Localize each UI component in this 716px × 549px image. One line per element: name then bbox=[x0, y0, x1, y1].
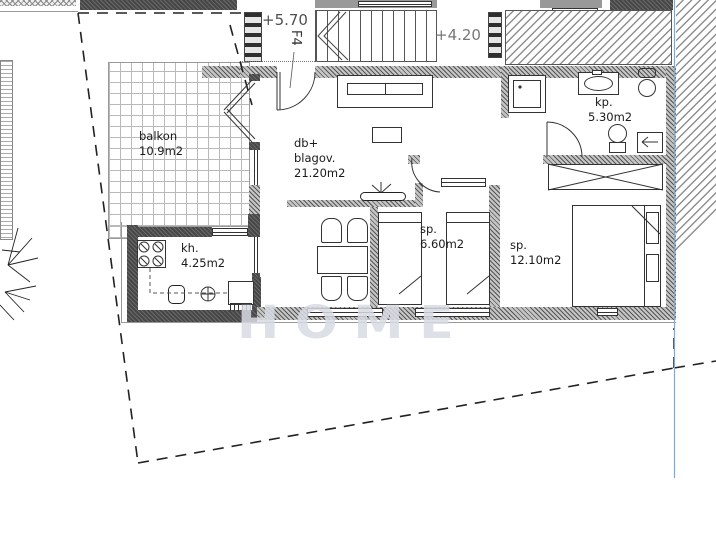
elevation-upper-label: +5.70 bbox=[262, 11, 308, 29]
sofa-divider bbox=[385, 83, 386, 95]
bed-small-1-headline bbox=[379, 222, 421, 223]
wc-pedestal bbox=[609, 142, 626, 153]
room-label-bedroom-small: sp. 6.60m2 bbox=[420, 222, 464, 252]
room-name: balkon bbox=[139, 129, 183, 144]
floor-plan: HOME balkon 10.9m2 kh. 4.25m2 db+ blagov… bbox=[0, 0, 716, 549]
room-name: sp. bbox=[420, 222, 464, 237]
room-name: kp. bbox=[588, 95, 632, 110]
hall-top-wall bbox=[543, 155, 666, 164]
dining-table bbox=[317, 246, 368, 274]
bed-large-pillow bbox=[646, 212, 659, 244]
bed-large-pillow-divider bbox=[644, 206, 645, 306]
staircase bbox=[315, 10, 437, 62]
tree-symbol bbox=[0, 228, 38, 320]
toilet-bowl bbox=[638, 79, 656, 97]
stair-right-wall-section bbox=[488, 12, 502, 58]
west-window-2 bbox=[254, 237, 258, 273]
room-label-bathroom: kp. 5.30m2 bbox=[588, 95, 632, 125]
bedroom-door-leaf bbox=[441, 178, 486, 187]
kitchen-window bbox=[212, 228, 248, 236]
right-exterior-wall bbox=[666, 66, 676, 318]
counter-dashed-line bbox=[150, 268, 228, 293]
room-name: sp. bbox=[510, 238, 561, 253]
shower-inner bbox=[513, 80, 541, 108]
watermark: HOME bbox=[237, 296, 469, 349]
top-left-line bbox=[0, 11, 78, 12]
right-edge-hatch bbox=[676, 0, 716, 255]
kitchen-sink bbox=[168, 285, 185, 304]
bedroom-partition-wall bbox=[489, 185, 500, 310]
kitchen-top-pier bbox=[248, 214, 260, 237]
stair-landing-dotted-line bbox=[240, 61, 317, 62]
elevation-lower-label: +4.20 bbox=[435, 26, 481, 44]
top-left-crosshatch-wall bbox=[0, 0, 76, 6]
wc-bowl bbox=[608, 124, 627, 143]
partition-stub-up bbox=[415, 183, 423, 207]
balcony-door-frame-bottom bbox=[249, 142, 260, 150]
top-right-wall-band bbox=[610, 0, 673, 10]
room-name: kh. bbox=[181, 241, 225, 256]
bathroom-door bbox=[547, 122, 582, 157]
room-area: 4.25m2 bbox=[181, 256, 225, 271]
toilet-tank bbox=[638, 68, 656, 78]
room-label-bedroom-large: sp. 12.10m2 bbox=[510, 238, 561, 268]
hall-door-stub bbox=[408, 155, 420, 164]
room-area: 5.30m2 bbox=[588, 110, 632, 125]
living-partition-horizontal bbox=[287, 200, 422, 207]
washbasin-bowl bbox=[584, 76, 613, 91]
entry-door bbox=[277, 72, 315, 110]
room-area: 10.9m2 bbox=[139, 144, 183, 159]
bottom-window-bedroom-large bbox=[597, 308, 618, 316]
stove bbox=[137, 240, 166, 268]
balcony-door-frame-top bbox=[249, 74, 260, 81]
left-hedge bbox=[0, 60, 13, 240]
f4-leader-line bbox=[290, 52, 294, 88]
stair-landing-window bbox=[358, 1, 432, 7]
room-label-balkon: balkon 10.9m2 bbox=[139, 129, 183, 159]
dining-chair bbox=[347, 218, 368, 243]
adjacent-building-hatch bbox=[505, 10, 672, 65]
room-label-kitchen: kh. 4.25m2 bbox=[181, 241, 225, 271]
vent-box bbox=[637, 132, 663, 153]
room-name: db+ bbox=[294, 136, 345, 151]
room-area: 6.60m2 bbox=[420, 237, 464, 252]
west-window-1 bbox=[254, 150, 258, 185]
facade-line-left bbox=[121, 222, 122, 323]
wardrobe bbox=[548, 164, 663, 190]
room-area: 12.10m2 bbox=[510, 253, 561, 268]
stair-left-wall-section bbox=[244, 12, 262, 62]
coffee-table bbox=[372, 127, 402, 143]
drain-symbol bbox=[201, 287, 215, 301]
living-partition-vertical bbox=[370, 200, 378, 310]
top-neighbor-wall bbox=[80, 0, 237, 10]
bed-small-1 bbox=[378, 212, 422, 305]
unit-label-f4: F4 bbox=[288, 30, 303, 46]
tv-sideboard bbox=[360, 192, 406, 201]
balcony-floor-grid-ext bbox=[108, 226, 128, 239]
roof-element-band bbox=[540, 0, 602, 8]
room-name: blagov. bbox=[294, 151, 345, 166]
room-label-living: db+ blagov. 21.20m2 bbox=[294, 136, 345, 181]
dining-chair bbox=[321, 218, 342, 243]
kitchen-top-wall bbox=[127, 227, 212, 237]
room-area: 21.20m2 bbox=[294, 166, 345, 181]
washbasin-tap bbox=[592, 70, 602, 75]
bed-large-pillow bbox=[646, 254, 659, 282]
